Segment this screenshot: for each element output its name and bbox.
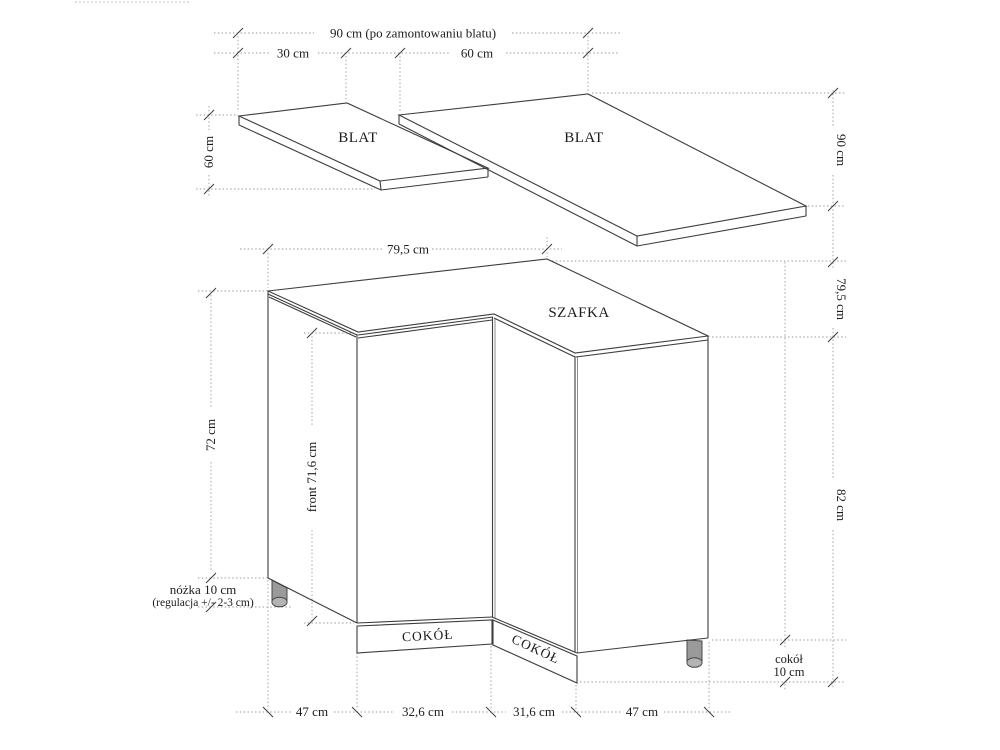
corner-cabinet-technical-drawing: 90 cm (po zamontowaniu blatu) 30 cm 60 c… — [0, 0, 1000, 750]
leg-note-line2: (regulacja +/- 2-3 cm) — [152, 597, 253, 609]
dim-cabinet-width: 79,5 cm — [387, 242, 429, 257]
cabinet-label: SZAFKA — [548, 305, 609, 321]
plinth-note-line2: 10 cm — [774, 665, 805, 679]
plinth-note-line1: cokół — [775, 652, 803, 666]
cabinet-leg-right — [687, 640, 702, 667]
dim-countertop-right-depth: 90 cm — [834, 134, 849, 166]
dim-top-total: 90 cm (po zamontowaniu blatu) — [330, 26, 496, 41]
dim-top-right-segment: 60 cm — [461, 46, 493, 61]
dim-cabinet-depth: 79,5 cm — [834, 278, 849, 320]
countertop-right-label: BLAT — [564, 130, 604, 146]
dim-top-left-segment: 30 cm — [277, 46, 309, 61]
dim-cabinet-height-left: 72 cm — [203, 419, 218, 451]
dim-bottom-segment-3: 31,6 cm — [513, 704, 555, 719]
countertop-left-label: BLAT — [338, 130, 378, 146]
dim-countertop-left-depth: 60 cm — [201, 136, 216, 168]
technical-drawing-page: 90 cm (po zamontowaniu blatu) 30 cm 60 c… — [0, 0, 1000, 750]
dim-front-height: front 71,6 cm — [304, 442, 319, 512]
plinth-left-label: COKÓŁ — [402, 627, 454, 645]
dim-bottom-segment-1: 47 cm — [296, 704, 328, 719]
dim-total-height-right: 82 cm — [834, 489, 849, 521]
dim-bottom-segment-4: 47 cm — [626, 704, 658, 719]
leg-note-line1: nóżka 10 cm — [170, 582, 236, 597]
cabinet-top-face — [268, 259, 708, 353]
dim-bottom-segment-2: 32,6 cm — [402, 704, 444, 719]
cabinet — [268, 259, 708, 683]
